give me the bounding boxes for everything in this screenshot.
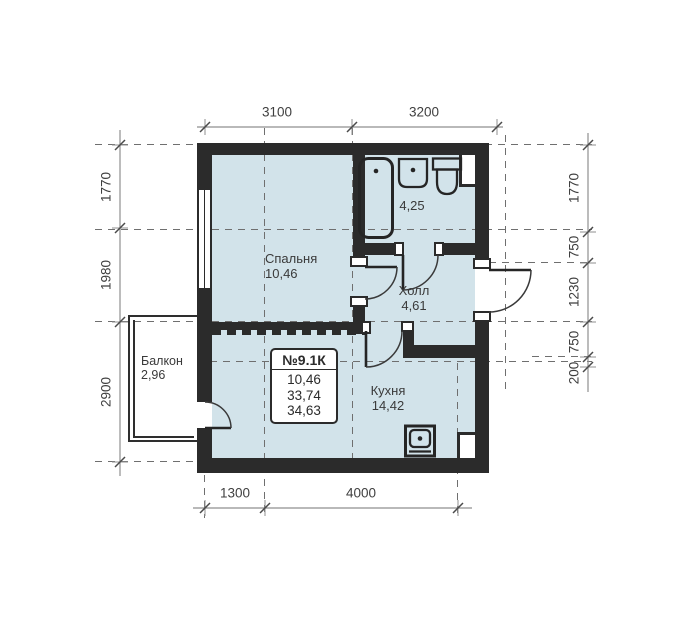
dim-right-5: 200 xyxy=(567,362,582,385)
balcony-wall xyxy=(133,436,194,438)
axis-line xyxy=(532,356,592,357)
wall-bedroom-bathroom xyxy=(353,155,365,258)
axis-line xyxy=(95,229,592,230)
shaft-niche xyxy=(459,155,475,187)
hall-area: 4,61 xyxy=(390,298,438,313)
balcony-wall xyxy=(133,320,135,437)
dim-left-1: 1770 xyxy=(99,172,114,202)
axis-line xyxy=(95,461,197,462)
wall-bedroom-kitchen xyxy=(197,322,365,330)
bedroom-label: Спальня 10,46 xyxy=(265,251,317,281)
window-glass-line xyxy=(210,190,212,288)
bathroom-area: 4,25 xyxy=(392,198,432,213)
dim-right-2: 750 xyxy=(567,236,582,259)
door-jamb xyxy=(401,321,414,332)
door-jamb xyxy=(361,321,371,334)
dim-top-1: 3100 xyxy=(262,105,292,120)
dim-bottom-2: 4000 xyxy=(346,486,376,501)
window-glass-line xyxy=(204,190,206,288)
axis-line xyxy=(505,135,506,390)
wall-bathroom-bottom-b xyxy=(444,243,475,255)
balcony-name: Балкон xyxy=(141,354,183,368)
wall-bathroom-bottom-a xyxy=(365,243,396,255)
kitchen-label: Кухня 14,42 xyxy=(362,383,414,413)
bathroom-label: 4,25 xyxy=(392,198,432,213)
unit-number: №9.1К xyxy=(272,350,336,369)
window-glass-line xyxy=(197,190,199,288)
dim-left-3: 2900 xyxy=(99,377,114,407)
axis-line xyxy=(204,475,205,518)
kitchen-area: 14,42 xyxy=(362,398,414,413)
floor-plan: 3100 3200 1300 4000 1770 1980 2900 1770 … xyxy=(0,0,679,632)
hall-label: Холл 4,61 xyxy=(390,283,438,313)
unit-area-total: 34,63 xyxy=(272,403,336,419)
wall-top xyxy=(197,143,489,155)
hall-name: Холл xyxy=(390,283,438,298)
wall-hall-kitchen-stub xyxy=(403,345,475,358)
door-jamb xyxy=(473,311,491,322)
balcony-wall xyxy=(128,315,130,442)
dim-left-2: 1980 xyxy=(99,260,114,290)
unit-area-living: 10,46 xyxy=(272,372,336,388)
unit-info-box: №9.1К 10,46 33,74 34,63 xyxy=(270,348,338,424)
dim-right-4: 750 xyxy=(567,331,582,354)
kitchen-name: Кухня xyxy=(362,383,414,398)
balcony-label: Балкон 2,96 xyxy=(141,354,183,382)
dim-right-1: 1770 xyxy=(567,173,582,203)
dim-bottom-1: 1300 xyxy=(220,486,250,501)
balcony-door-opening xyxy=(197,402,212,428)
kitchen-column xyxy=(457,432,475,458)
door-jamb xyxy=(350,256,368,267)
dim-top-2: 3200 xyxy=(409,105,439,120)
bedroom-area: 10,46 xyxy=(265,266,317,281)
balcony-area: 2,96 xyxy=(141,368,183,382)
bedroom-name: Спальня xyxy=(265,251,317,266)
door-jamb xyxy=(350,296,368,307)
door-jamb xyxy=(394,242,404,256)
wall-bedroom-kitchen-hatch xyxy=(212,330,365,335)
dim-right-3: 1230 xyxy=(567,277,582,307)
entrance-door xyxy=(489,270,531,312)
door-jamb xyxy=(473,258,491,269)
door-jamb xyxy=(434,242,444,256)
bedroom-window-opening xyxy=(197,190,212,288)
entrance-door-opening xyxy=(475,268,489,312)
axis-line xyxy=(197,361,592,362)
wall-bottom xyxy=(197,458,489,473)
balcony-wall xyxy=(128,440,198,442)
unit-area-main: 33,74 xyxy=(272,388,336,404)
balcony-wall xyxy=(128,315,198,317)
